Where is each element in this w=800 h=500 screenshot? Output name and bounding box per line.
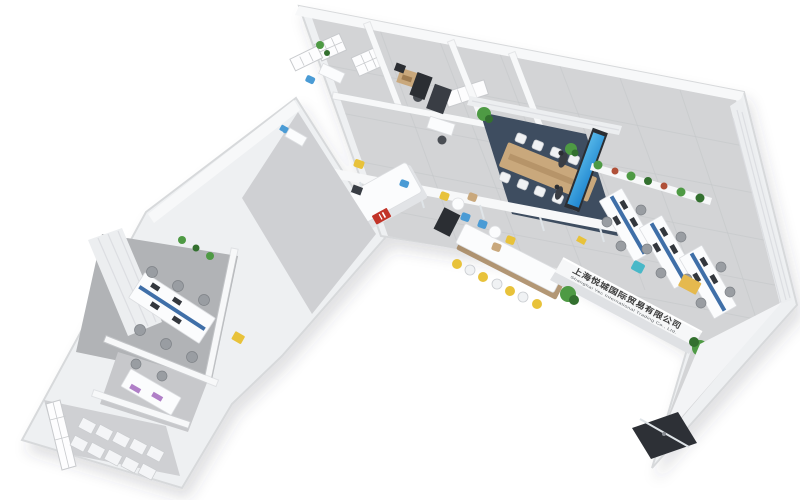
floorplan-canvas: 上海悦城国际贸易有限公司 Shanghai Yec International … — [0, 0, 800, 500]
plant-icon — [324, 50, 330, 56]
office-chair — [438, 136, 447, 145]
plant-icon — [316, 41, 324, 49]
office-floorplan-render: 上海悦城国际贸易有限公司 Shanghai Yec International … — [0, 0, 800, 500]
blue-chair — [305, 75, 316, 85]
